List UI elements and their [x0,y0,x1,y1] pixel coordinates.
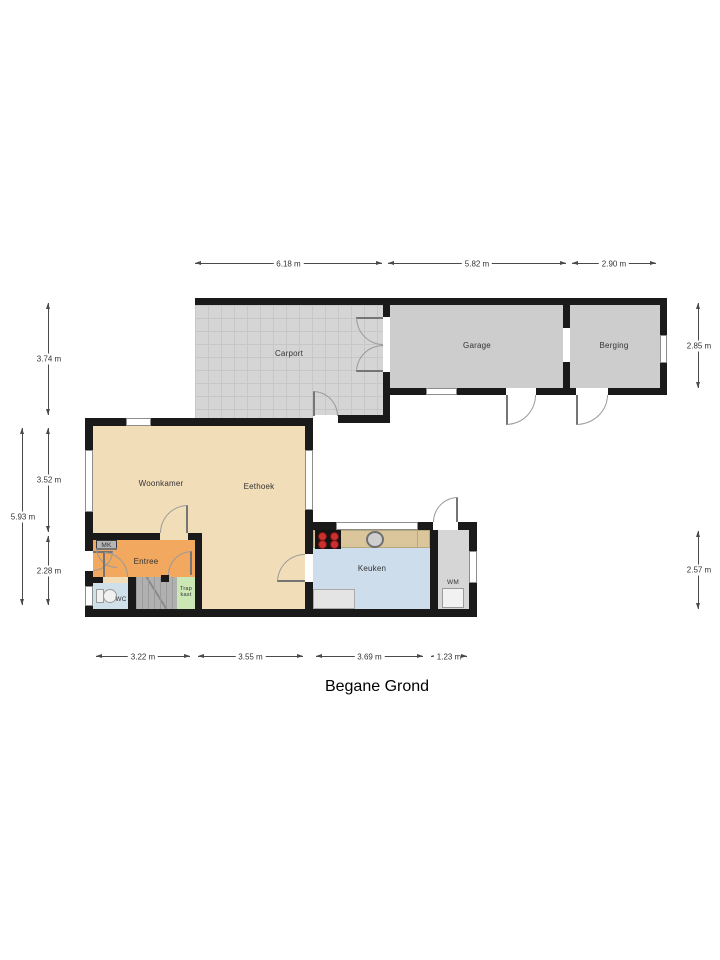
dimension-label: 3.74 m [35,354,63,365]
window [426,388,457,395]
door-opening [576,388,608,395]
kitchen-cabinet [313,589,355,609]
dimension-label: 3.55 m [235,653,265,662]
door-arc-wm-exterior [433,497,458,522]
burner-icon [330,540,339,549]
door-opening [305,554,313,582]
dimension-right-1: 2.85 m [698,303,699,388]
door-opening [313,415,338,423]
dimension-bottom-1: 3.22 m [96,656,190,657]
cooktop-icon [315,530,341,549]
dimension-left-4: 5.93 m [22,428,23,605]
window [336,522,418,530]
sink-icon [366,531,384,548]
dimension-label: 2.90 m [599,260,629,269]
counter-seam [417,530,418,548]
burner-icon [318,540,327,549]
dimension-bottom-2: 3.55 m [198,656,303,657]
floor-plan: Carport Garage Berging Woonkamer Eethoek… [0,0,720,960]
dimension-top-3: 2.90 m [572,263,656,264]
wall-segment [383,395,390,423]
dimension-label: 5.82 m [462,260,492,269]
wall-segment [195,298,667,305]
door-opening [85,551,93,571]
plan-title: Begane Grond [297,678,457,696]
door-opening [383,317,390,372]
door-arc-garage-exterior [506,395,536,425]
dimension-label: 3.22 m [128,653,158,662]
carport-floor [195,305,383,418]
wall-segment [305,418,313,617]
dimension-bottom-4: 1.23 m [431,656,467,657]
window [126,418,151,426]
window [469,551,477,583]
wall-segment [128,577,136,609]
dimension-left-1: 3.74 m [48,303,49,415]
dimension-right-2: 2.57 m [698,531,699,609]
dimension-label: 2.85 m [685,340,713,351]
wc-label: WC [106,596,136,603]
wall-segment [161,575,169,582]
dimension-left-2: 3.52 m [48,428,49,532]
door-arc-berging-exterior [576,395,608,425]
wall-segment [195,533,202,617]
window [85,586,93,606]
dimension-label: 3.69 m [354,653,384,662]
dimension-label: 5.93 m [9,511,37,522]
dimension-top-1: 6.18 m [195,263,382,264]
garage-label: Garage [442,342,512,351]
mk-label: MK [96,542,117,549]
dimension-bottom-3: 3.69 m [316,656,423,657]
wall-segment [93,533,160,540]
washing-machine-icon [442,588,464,608]
window [85,450,93,512]
carport-label: Carport [254,350,324,359]
wall-segment [85,418,313,426]
dimension-top-2: 5.82 m [388,263,566,264]
door-opening [563,328,570,362]
dimension-label: 2.28 m [35,565,63,576]
trapkast-label: Trap kast [170,586,202,598]
keuken-label: Keuken [337,565,407,574]
door-opening [506,388,536,395]
window [305,450,313,510]
window [660,335,667,363]
dimension-label: 1.23 m [434,653,464,662]
door-opening [433,522,458,530]
wall-segment [85,609,477,617]
woonkamer-label: Woonkamer [121,480,201,489]
wall-segment [430,530,438,609]
eethoek-label: Eethoek [224,483,294,492]
wm-label: WM [443,579,463,586]
dimension-left-3: 2.28 m [48,536,49,605]
dimension-label: 3.52 m [35,475,63,486]
entree-label: Entree [111,558,181,567]
dimension-label: 6.18 m [273,260,303,269]
berging-label: Berging [579,342,649,351]
dimension-label: 2.57 m [685,565,713,576]
wall-segment [93,577,103,583]
